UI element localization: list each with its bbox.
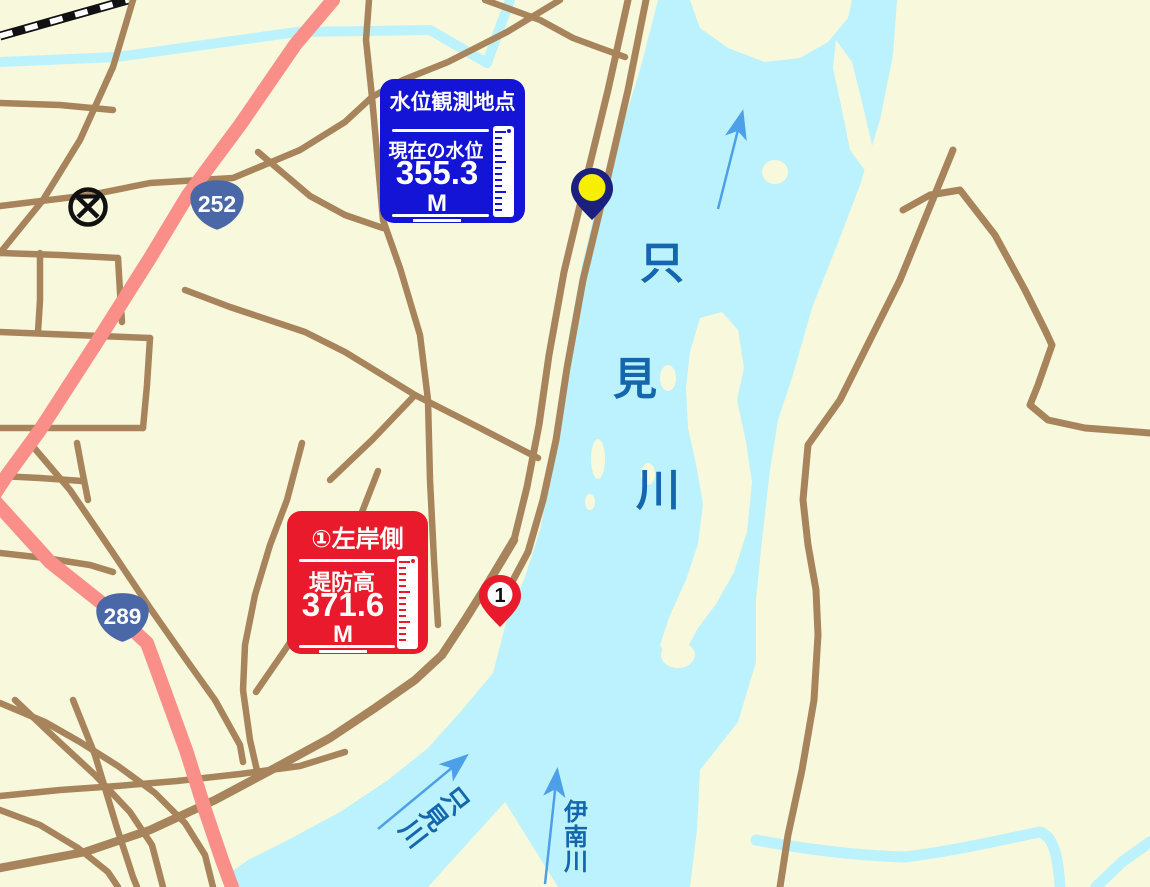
levee-point-pin[interactable]: 1 xyxy=(478,574,522,628)
water-gauge-unit: M xyxy=(380,190,494,222)
unit-text: M xyxy=(413,190,461,222)
pin-dot xyxy=(579,174,606,201)
levee-value: 371.6 xyxy=(287,586,399,624)
pin-number: 1 xyxy=(494,585,505,607)
char: 伊 xyxy=(562,800,590,825)
river-label-main-char3: 川 xyxy=(636,454,680,518)
river-label-main-char1: 只 xyxy=(640,227,684,291)
ruler-icon xyxy=(397,556,418,649)
route-badge-289: 289 xyxy=(92,589,153,646)
route-badge-252: 252 xyxy=(186,177,248,233)
levee-box: ①左岸側 堤防高 371.6 M xyxy=(287,511,428,654)
river-label-main-char2: 見 xyxy=(613,343,657,407)
char: 南 xyxy=(562,825,590,850)
route-number: 289 xyxy=(104,604,142,629)
water-level-pin[interactable] xyxy=(570,167,614,221)
map-canvas: 252 289 水位観測地点 現在の水位 355.3 M ①左岸側 堤防高 37… xyxy=(0,0,1150,887)
river-label-ina-branch: 伊 南 川 xyxy=(562,800,590,875)
divider xyxy=(299,559,395,562)
route-number: 252 xyxy=(198,191,236,217)
water-gauge-value: 355.3 xyxy=(380,154,494,192)
divider xyxy=(299,645,395,648)
ruler-icon xyxy=(493,126,514,217)
police-station-icon xyxy=(66,185,110,229)
levee-title: ①左岸側 xyxy=(287,519,428,554)
water-gauge-title: 水位観測地点 xyxy=(380,86,525,116)
map-base-layer xyxy=(0,0,1150,887)
divider xyxy=(392,129,489,132)
levee-unit: M xyxy=(287,621,399,653)
water-gauge-box: 水位観測地点 現在の水位 355.3 M xyxy=(380,79,525,223)
unit-text: M xyxy=(319,621,367,653)
char: 川 xyxy=(562,850,590,875)
divider xyxy=(392,214,489,217)
